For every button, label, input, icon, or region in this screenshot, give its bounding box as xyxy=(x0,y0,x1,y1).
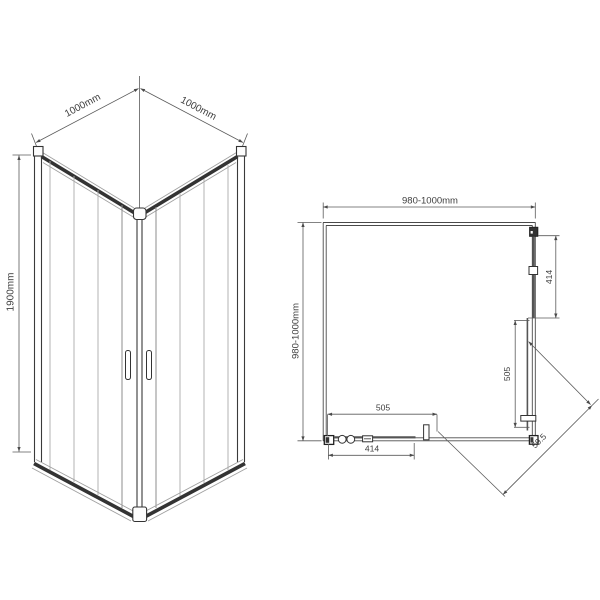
perspective-view: 1000mm 1000mm 1900mm xyxy=(6,76,248,522)
dimension-diagonal-entrance: 59.5 xyxy=(438,342,599,497)
bottom-rails xyxy=(32,460,247,522)
dimension-right-door: 505 xyxy=(502,321,530,428)
plan-top-width-label: 980-1000mm xyxy=(402,196,458,207)
plan-view: 980-1000mm 980-1000mm 414 505 xyxy=(291,196,599,497)
dimension-plan-left-depth: 980-1000mm xyxy=(291,223,322,441)
perspective-width-left-label: 1000mm xyxy=(63,92,103,120)
plan-walls xyxy=(323,223,536,442)
plan-left-depth-label: 980-1000mm xyxy=(291,303,302,359)
right-door-label: 505 xyxy=(502,367,512,382)
perspective-height-label: 1900mm xyxy=(6,273,17,312)
corner-profiles xyxy=(324,227,538,444)
bottom-opening-label: 505 xyxy=(376,403,391,413)
front-corner-joint xyxy=(134,208,147,220)
right-door-handle-plan xyxy=(521,416,536,422)
left-door-handle xyxy=(126,351,131,380)
right-door-handle xyxy=(147,351,152,380)
dimension-bottom-door: 414 xyxy=(328,443,414,460)
dimension-plan-top-width: 980-1000mm xyxy=(323,196,535,219)
roller-left xyxy=(338,435,346,443)
bottom-door-handle-plan xyxy=(424,425,429,440)
bottom-left-profile-insert xyxy=(326,437,330,443)
dimension-bottom-opening: 505 xyxy=(328,403,437,437)
roller-right xyxy=(347,435,355,443)
right-corner-cap xyxy=(237,147,247,157)
right-fixed-panel-label: 414 xyxy=(544,270,554,285)
perspective-extension-lines xyxy=(13,76,248,452)
front-bottom-foot xyxy=(133,507,147,522)
dimension-width-right: 1000mm xyxy=(141,89,244,143)
bottom-door-label: 414 xyxy=(365,444,380,454)
technical-drawing-canvas: 1000mm 1000mm 1900mm xyxy=(0,0,600,600)
right-panel-bracket xyxy=(529,267,538,275)
left-corner-cap xyxy=(34,147,44,157)
shower-enclosure-drawing: 1000mm 1000mm 1900mm xyxy=(0,0,600,600)
top-right-profile-slot xyxy=(531,231,533,234)
dimension-width-left: 1000mm xyxy=(36,89,139,143)
dimension-height: 1900mm xyxy=(6,156,20,452)
